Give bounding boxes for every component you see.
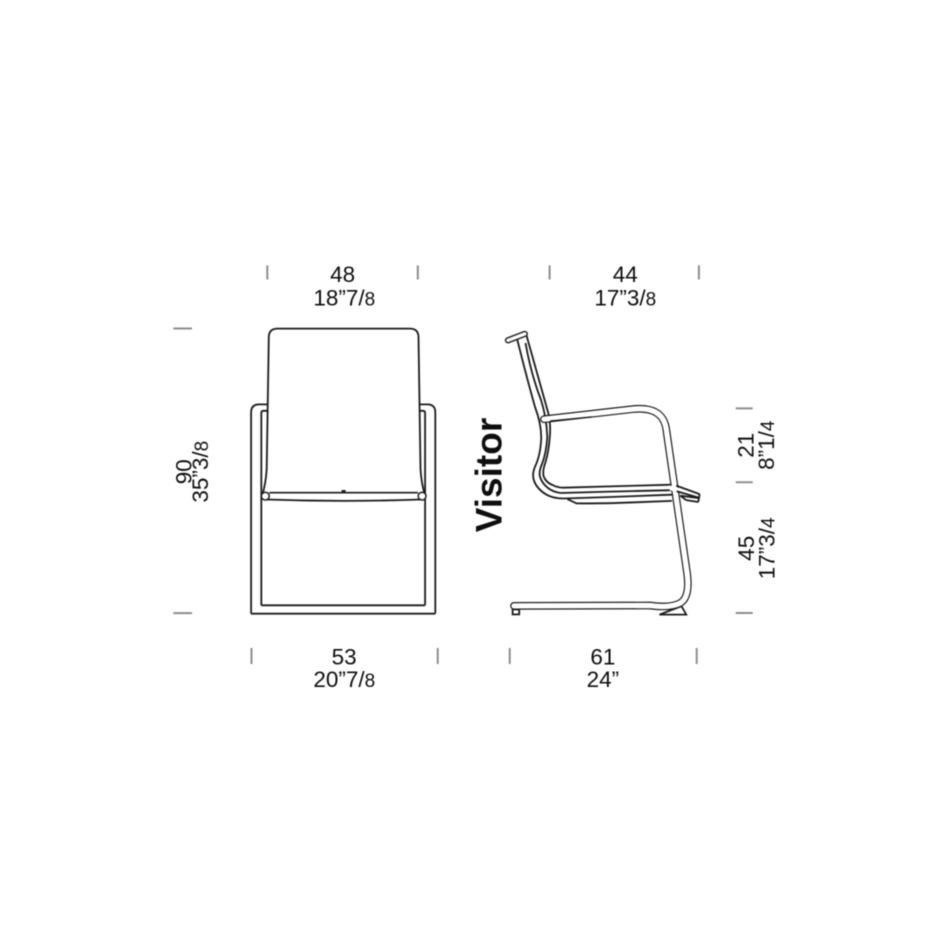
svg-text:44: 44 — [613, 262, 638, 287]
svg-text:Visitor: Visitor — [469, 418, 510, 532]
svg-text:4517”3/4: 4517”3/4 — [734, 517, 780, 579]
svg-text:53: 53 — [332, 645, 357, 670]
svg-text:18”7/8: 18”7/8 — [313, 286, 375, 311]
svg-text:61: 61 — [590, 645, 615, 670]
svg-text:218”1/4: 218”1/4 — [733, 420, 779, 470]
svg-text:17”3/8: 17”3/8 — [594, 286, 656, 311]
svg-text:9035”3/8: 9035”3/8 — [171, 441, 213, 503]
svg-text:48: 48 — [330, 262, 355, 287]
svg-text:20”7/8: 20”7/8 — [313, 667, 375, 692]
svg-text:24”: 24” — [587, 667, 620, 692]
